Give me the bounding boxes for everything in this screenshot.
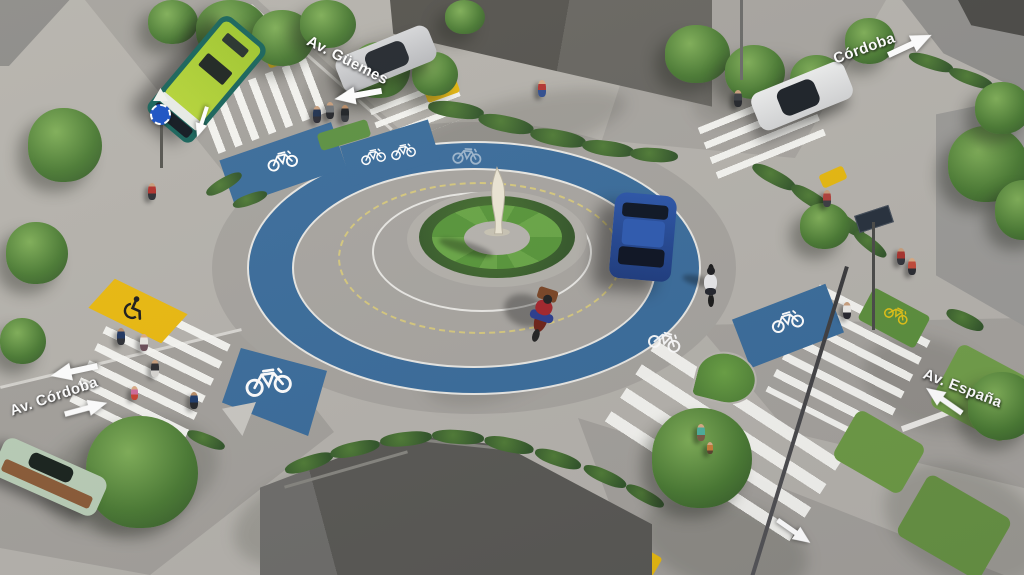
tree (6, 222, 68, 284)
pedestrian (151, 360, 159, 377)
roundabout-sign-icon (150, 104, 171, 125)
pedestrian (326, 102, 334, 119)
tree (86, 416, 198, 528)
tree (665, 25, 730, 83)
car-blue (608, 191, 677, 282)
tactile-ramp (818, 165, 847, 188)
moto-wheel (531, 328, 542, 343)
tree (0, 318, 46, 364)
tree (28, 108, 102, 182)
tree (148, 0, 198, 44)
cyclist-shorts (705, 288, 716, 295)
monument (481, 158, 513, 244)
pedestrian (843, 302, 851, 319)
cyclist (700, 250, 720, 308)
pedestrian (823, 190, 831, 207)
pedestrian (897, 248, 905, 265)
pedestrian (140, 334, 148, 351)
pedestrian (734, 90, 742, 107)
tree (975, 82, 1024, 134)
pedestrian (697, 424, 705, 441)
pedestrian (117, 328, 125, 345)
pedestrian (313, 106, 321, 123)
pedestrian (707, 442, 713, 454)
car-windshield (622, 202, 669, 220)
tree (652, 408, 752, 508)
tree (445, 0, 485, 34)
cyclist-head (707, 267, 715, 275)
car-rear-window (618, 246, 665, 268)
pedestrian (148, 183, 156, 200)
pedestrian (190, 392, 198, 409)
pedestrian (538, 80, 546, 97)
car-roof (621, 218, 665, 248)
car-cabin (775, 77, 823, 118)
hedge (851, 227, 890, 261)
bicycle-marking-icon (452, 145, 483, 166)
pedestrian (908, 258, 916, 275)
pedestrian (131, 386, 138, 400)
streetlight-pole (740, 0, 743, 80)
streetlight-pole (872, 222, 875, 330)
roundabout-render: Av. Güemes Córdoba Av. Córdoba Av. Españ… (0, 0, 1024, 575)
tree (800, 203, 850, 249)
pedestrian (341, 105, 349, 122)
